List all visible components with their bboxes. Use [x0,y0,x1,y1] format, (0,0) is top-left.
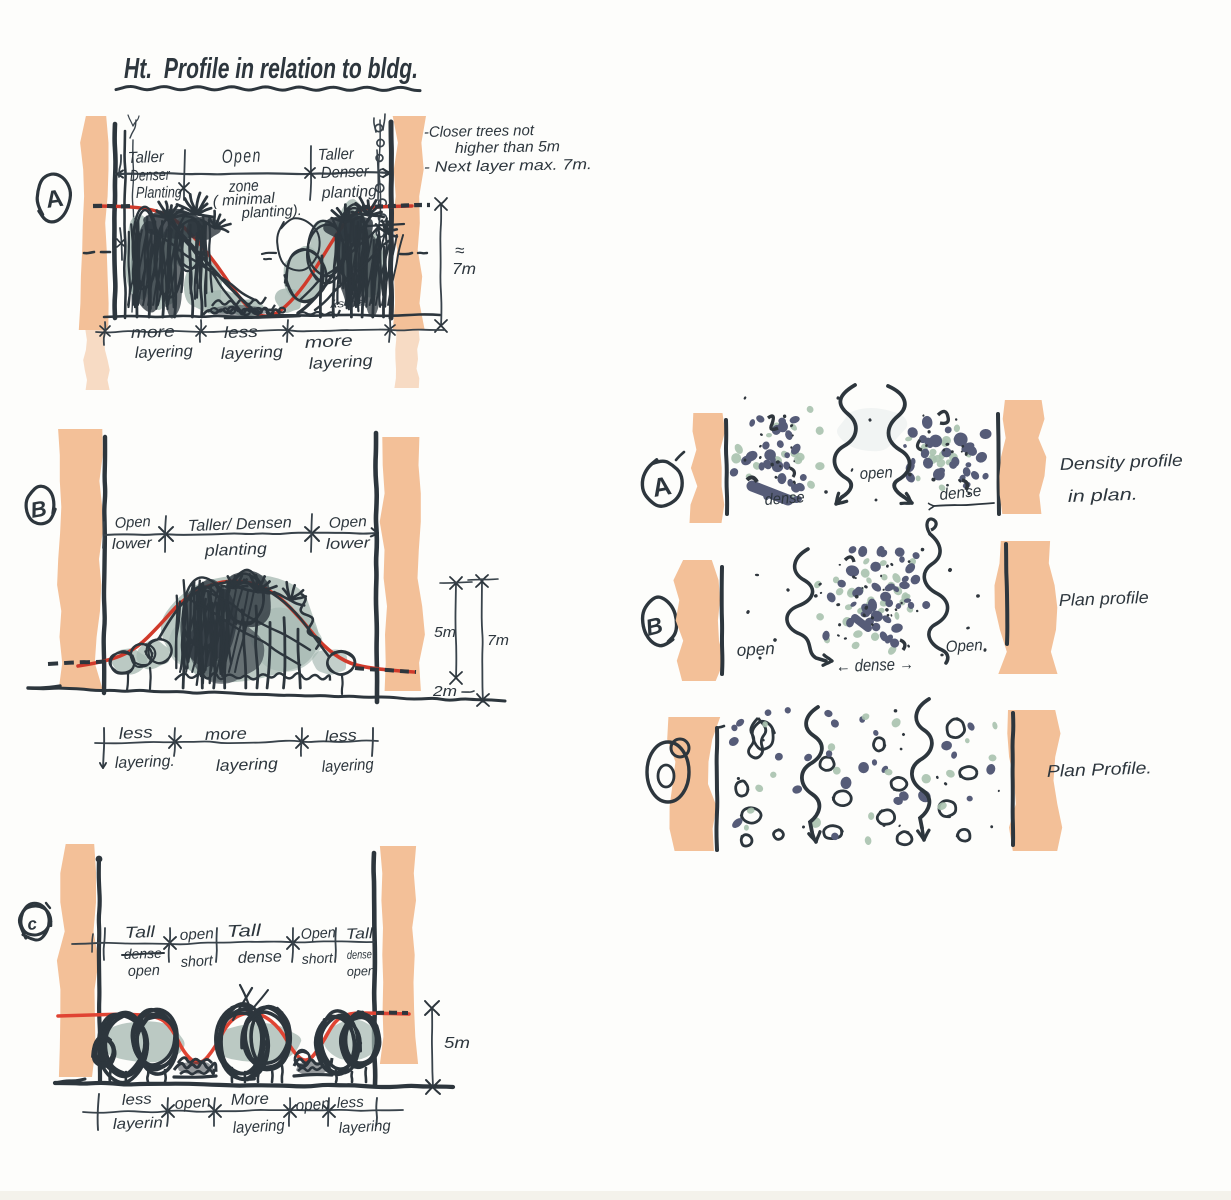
svg-text:layering: layering [221,344,284,363]
svg-text:Tall: Tall [226,921,262,941]
svg-text:Open: Open [114,513,151,532]
svg-text:dense: dense [347,947,373,962]
svg-text:more: more [205,726,248,744]
svg-text:Tall: Tall [346,925,374,943]
svg-text:Plan profile: Plan profile [1058,588,1149,610]
svg-text:Plan Profile.: Plan Profile. [1046,758,1152,781]
svg-text:Denser: Denser [130,167,171,185]
svg-text:open: open [179,925,214,944]
svg-text:layerin: layerin [113,1114,164,1133]
svg-text:open: open [128,962,161,980]
svg-text:less: less [324,727,357,746]
svg-text:Taller: Taller [128,149,165,167]
svg-text:Denser: Denser [321,163,370,182]
svg-text:5m: 5m [444,1035,470,1052]
svg-text:← dense →: ← dense → [835,654,914,676]
svg-text:Taller/ Densen: Taller/ Densen [188,514,293,535]
svg-text:short: short [301,949,334,967]
svg-text:planting: planting [321,183,378,202]
svg-text:≈: ≈ [455,241,465,260]
svg-text:layering: layering [232,1117,285,1137]
svg-text:more: more [304,332,353,351]
svg-text:Open: Open [328,513,367,532]
svg-text:Taller: Taller [318,146,355,164]
svg-text:7m: 7m [487,632,509,649]
svg-text:More: More [231,1091,270,1109]
svg-text:layering: layering [135,343,194,362]
svg-text:open: open [295,1096,330,1115]
svg-text:Tall: Tall [125,924,156,942]
svg-text:open: open [736,639,775,660]
svg-text:short: short [180,952,214,971]
svg-text:more: more [131,323,176,342]
svg-text:planting: planting [203,541,267,560]
svg-text:dense: dense [238,948,283,967]
svg-text:layering.: layering. [115,753,176,772]
svg-text:- Next layer max. 7m.: - Next layer max. 7m. [424,156,592,176]
svg-text:less: less [336,1094,364,1112]
svg-text:less: less [224,324,259,342]
svg-text:open: open [859,464,893,483]
svg-text:open: open [174,1094,211,1113]
svg-text:layering: layering [308,353,373,373]
svg-text:Ht. Profile in relation to bl: Ht. Profile in relation to bldg. [124,53,418,85]
svg-text:less: less [121,1090,152,1109]
svg-text:less: less [118,724,153,743]
svg-text:Open: Open [300,924,336,943]
svg-text:Open: Open [945,637,983,656]
svg-text:2m: 2m [432,683,457,700]
svg-text:Open: Open [221,146,262,168]
svg-text:higher than 5m: higher than 5m [455,138,560,157]
svg-text:layering: layering [321,756,374,776]
svg-text:in plan.: in plan. [1067,485,1138,506]
svg-text:layering: layering [216,756,279,775]
svg-text:Planting: Planting [136,184,182,202]
svg-text:dense: dense [764,489,805,509]
svg-text:lower: lower [112,535,154,553]
svg-text:lower: lower [326,534,372,553]
svg-text:5m: 5m [434,624,456,641]
svg-text:open: open [347,963,376,979]
svg-text:layering: layering [338,1117,391,1137]
svg-text:7m: 7m [452,261,476,278]
